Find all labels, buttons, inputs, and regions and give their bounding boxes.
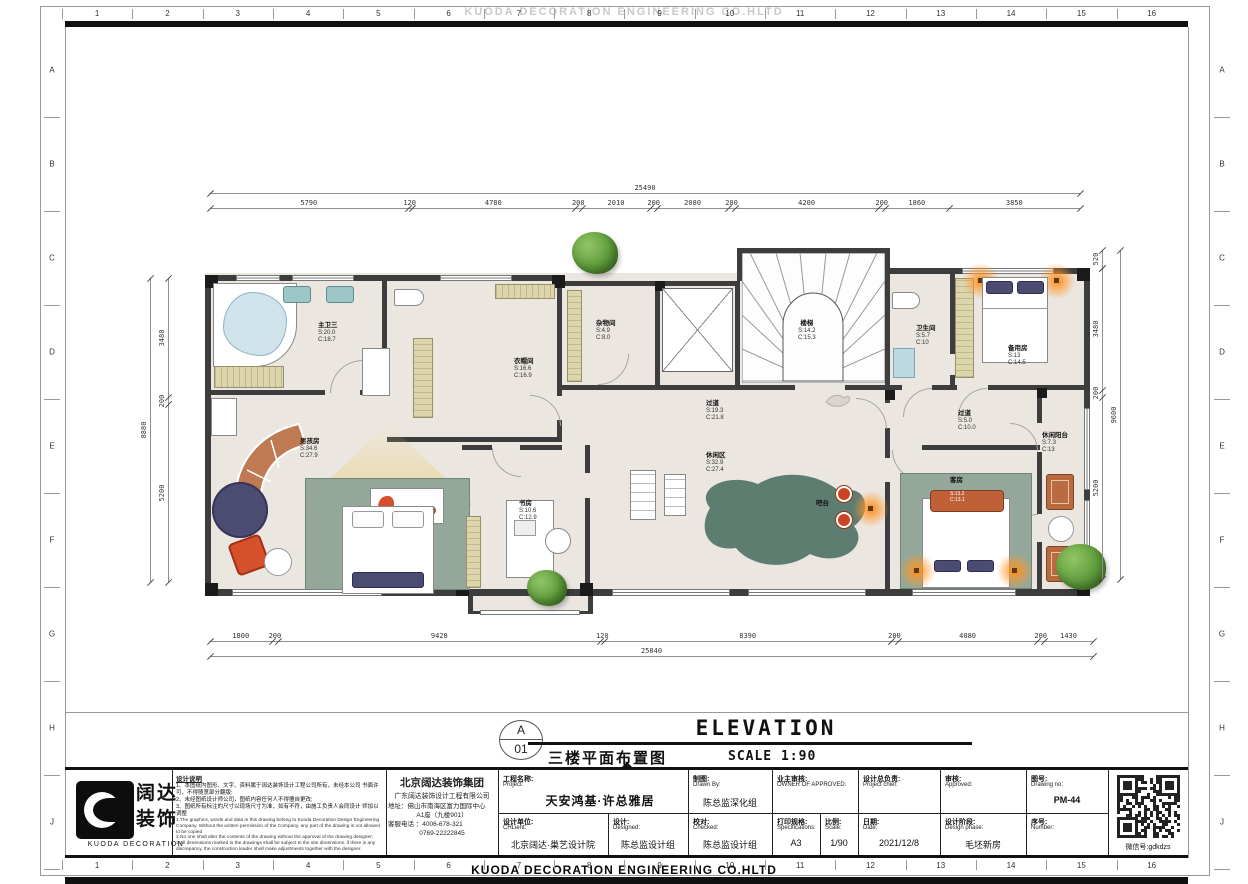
gym-equipment <box>664 474 686 516</box>
ruler-col-7: 7 <box>517 861 521 870</box>
plant <box>527 570 567 606</box>
storage-shelf <box>567 290 582 382</box>
ruler-tick <box>343 860 344 870</box>
ruler-tick <box>695 9 696 19</box>
ruler-col-7: 7 <box>517 9 521 18</box>
dim-bottom-total-tick <box>1090 653 1097 660</box>
ruler-tick <box>695 860 696 870</box>
ruler-tick <box>1117 860 1118 870</box>
window <box>292 275 354 281</box>
ruler-tick <box>203 9 204 19</box>
dim-bottom-label: 9420 <box>431 632 448 640</box>
ruler-tick <box>835 860 836 870</box>
room-label-master-bath: 主卫三 S:20.0 C:18.7 <box>318 322 338 345</box>
ruler-tick <box>765 860 766 870</box>
dim-bottom-tick <box>1090 638 1097 645</box>
dim-bottom-label: 1800 <box>232 632 249 640</box>
window <box>748 589 866 596</box>
window <box>236 275 280 281</box>
ruler-tick <box>906 860 907 870</box>
wardrobe <box>495 284 555 299</box>
dim-top-label: 5790 <box>300 199 317 207</box>
toilet <box>892 292 920 309</box>
ruler-col-8: 8 <box>587 9 591 18</box>
ruler-row-F: F <box>1220 536 1225 545</box>
window <box>480 610 580 615</box>
room-label-stairs: 楼梯 S:14.2 C:15.3 <box>798 320 816 343</box>
column <box>205 583 218 596</box>
bubble-top: A <box>500 721 542 740</box>
bookshelf <box>466 516 481 588</box>
ruler-col-15: 15 <box>1077 861 1086 870</box>
pillow <box>967 560 994 572</box>
ruler-col-8: 8 <box>587 861 591 870</box>
ruler-col-2: 2 <box>165 861 169 870</box>
ruler-tick <box>1214 775 1230 776</box>
wall <box>735 281 740 390</box>
wall <box>1037 542 1042 596</box>
stairs-fan <box>742 253 885 383</box>
wardrobe <box>955 278 974 378</box>
frame-right-inner <box>1188 27 1189 858</box>
ruler-tick <box>44 587 60 588</box>
window <box>440 275 512 281</box>
frame-top-bar <box>65 21 1188 27</box>
ruler-col-2: 2 <box>165 9 169 18</box>
ruler-col-1: 1 <box>95 861 99 870</box>
room-label-boys-room: 男孩房 S:34.6 C:27.9 <box>300 438 320 461</box>
pillow <box>986 281 1013 294</box>
ruler-tick <box>343 9 344 19</box>
dim-bottom-label: 8390 <box>739 632 756 640</box>
ruler-tick <box>44 399 60 400</box>
bathtub <box>223 292 287 356</box>
elevation-divider <box>65 712 1188 713</box>
ruler-col-10: 10 <box>725 9 734 18</box>
wall <box>560 281 737 286</box>
ruler-row-F: F <box>50 536 55 545</box>
print-spec: A3 <box>790 838 801 848</box>
elevation-marker <box>620 762 634 769</box>
ruler-tick <box>44 869 60 870</box>
ruler-tick <box>624 9 625 19</box>
ruler-tick <box>44 211 60 212</box>
dim-right-total-label: 9600 <box>1110 406 1118 423</box>
sink <box>283 286 311 303</box>
wall <box>885 428 890 458</box>
ruler-col-9: 9 <box>657 861 661 870</box>
designed-by: 陈总监设计组 <box>621 838 675 851</box>
frame-left-outer <box>40 6 41 876</box>
dim-top-label: 3850 <box>1006 199 1023 207</box>
room-label-corridor-main: 过道 S:19.3 C:21.8 <box>706 400 724 423</box>
ruler-tick <box>976 9 977 19</box>
bed-fold <box>982 308 1048 309</box>
room-label-guest: 客房 <box>950 477 963 485</box>
room-label-guest-sc: S:13.2 C:13.1 <box>950 491 965 503</box>
dresser <box>362 348 390 396</box>
dim-top-total-label: 25490 <box>634 184 655 192</box>
elevation-scale: SCALE 1:90 <box>728 749 816 764</box>
dim-bottom-total-line <box>210 656 1093 657</box>
ruler-row-H: H <box>49 724 55 733</box>
dim-bottom-label: 1430 <box>1060 632 1077 640</box>
ruler-col-4: 4 <box>306 9 310 18</box>
wall <box>932 385 957 390</box>
field-label: OWNER OF APPROVED: <box>777 782 846 788</box>
window <box>962 268 1054 274</box>
bar-stool <box>836 512 852 528</box>
ruler-col-14: 14 <box>1007 9 1016 18</box>
tb-divider <box>386 770 387 855</box>
ruler-tick <box>624 860 625 870</box>
blanket <box>352 572 424 588</box>
lounge-chair <box>1046 474 1074 510</box>
wall <box>205 390 325 395</box>
company-group: 北京阔达装饰集团 <box>388 775 496 791</box>
ruler-row-A: A <box>1219 66 1224 75</box>
wall <box>885 482 890 596</box>
ruler-row-C: C <box>1219 254 1225 263</box>
ruler-tick <box>976 860 977 870</box>
pillow <box>352 511 384 528</box>
room-label-spare: 备用房 S:13 C:14.5 <box>1008 345 1028 368</box>
ruler-tick <box>44 681 60 682</box>
dim-bottom-total-label: 25840 <box>641 647 662 655</box>
dim-top-label: 4780 <box>485 199 502 207</box>
wall <box>387 437 562 442</box>
ruler-tick <box>203 860 204 870</box>
window <box>612 589 730 596</box>
wall <box>660 385 740 390</box>
ruler-tick <box>62 9 63 19</box>
ruler-tick <box>1214 493 1230 494</box>
ruler-tick <box>765 9 766 19</box>
wall <box>655 286 660 390</box>
ruler-col-3: 3 <box>236 861 240 870</box>
dim-left-total-label: 8880 <box>140 422 148 439</box>
ruler-col-11: 11 <box>796 9 804 18</box>
design-unit: 北京阔达·巢艺设计院 <box>511 838 595 851</box>
ruler-tick <box>554 9 555 19</box>
ruler-tick <box>1214 399 1230 400</box>
ruler-row-C: C <box>49 254 55 263</box>
dim-left-tick <box>165 579 172 586</box>
dim-top-label: 1860 <box>908 199 925 207</box>
wall <box>988 385 1084 390</box>
wall <box>1037 395 1042 423</box>
tb-divider <box>820 813 821 855</box>
design-notes-header: 设计说明 <box>176 773 382 783</box>
room-label-bathroom: 卫生间 S:5.7 C:10 <box>916 325 936 348</box>
tb-divider <box>498 813 1108 814</box>
dim-right-total-tick <box>1117 576 1124 583</box>
room-label-cloakroom: 衣帽间 S:16.6 C:16.9 <box>514 358 534 381</box>
column <box>1077 268 1090 281</box>
ruler-tick <box>132 9 133 19</box>
design-notes: 设计说明 1、本图纸内图形、文字、资料属于阔达装饰设计工程公司所有，未经本公司 … <box>176 773 382 855</box>
ruler-col-15: 15 <box>1077 9 1086 18</box>
ruler-row-H: H <box>1219 724 1225 733</box>
drawing-sheet: KUODA DECORATION ENGINEERING CO.HLTD KUO… <box>0 0 1248 884</box>
field-label: Drawing no: <box>1031 782 1063 788</box>
project-name: 天安鸿基·许总雅居 <box>546 792 655 809</box>
ruler-tick <box>414 9 415 19</box>
bar-stool <box>836 486 852 502</box>
wall <box>1037 452 1042 514</box>
ruler-tick <box>273 9 274 19</box>
dim-top-total-line <box>210 193 1080 194</box>
room-label-study: 书房 S:10.6 C:12.9 <box>519 500 537 523</box>
ruler-col-13: 13 <box>936 9 945 18</box>
ruler-tick <box>62 860 63 870</box>
ruler-row-J: J <box>1220 818 1224 827</box>
dim-left-label: 3480 <box>158 329 166 346</box>
room-label-leisure: 休闲区 S:32.9 C:27.4 <box>706 452 726 475</box>
ruler-tick <box>414 860 415 870</box>
dim-right-total-line <box>1120 250 1121 579</box>
dim-bottom-label: 4080 <box>959 632 976 640</box>
elevator-shaft <box>662 288 733 372</box>
wechat-id: 微信号:gdkdzs <box>1100 842 1196 852</box>
room-label-bar: 吧台 <box>816 500 829 508</box>
wall <box>562 385 660 390</box>
dim-left-total-tick <box>147 579 154 586</box>
titleblock-bottom-rule <box>65 855 1188 858</box>
dim-right-extra-line <box>1102 250 1103 268</box>
ruler-row-E: E <box>49 442 54 451</box>
ruler-col-16: 16 <box>1147 861 1156 870</box>
ruler-tick <box>1214 587 1230 588</box>
dim-top-total-tick <box>1077 190 1084 197</box>
ruler-row-B: B <box>49 160 54 169</box>
tb-divider <box>608 813 609 855</box>
headboard <box>930 490 1004 512</box>
wall <box>520 445 562 450</box>
bird-decor <box>822 388 852 410</box>
ruler-col-13: 13 <box>936 861 945 870</box>
pillow <box>934 560 961 572</box>
ruler-row-D: D <box>1219 348 1225 357</box>
gym-equipment <box>630 470 656 520</box>
design-phase: 毛坯新房 <box>965 838 1001 851</box>
ruler-tick <box>1046 860 1047 870</box>
company-name: 广东阔达装饰设计工程有限公司 <box>388 791 496 802</box>
ruler-tick <box>554 860 555 870</box>
ruler-tick <box>273 860 274 870</box>
company-info: 北京阔达装饰集团 广东阔达装饰设计工程有限公司 地址：佛山市南海区富力国际中心 … <box>388 775 496 838</box>
ruler-tick <box>1214 117 1230 118</box>
pillow <box>392 511 424 528</box>
desk-chair <box>545 528 571 554</box>
ruler-tick <box>44 117 60 118</box>
field-label: Drawn By: <box>693 782 721 788</box>
field-label: Design phase: <box>945 825 983 831</box>
scale-value: 1/90 <box>830 838 848 848</box>
dim-bottom-line <box>210 641 1093 642</box>
room-label-corridor-right: 过道 S:5.0 C:10.0 <box>958 410 976 433</box>
wall <box>885 273 890 403</box>
ruler-row-J: J <box>50 818 54 827</box>
ruler-col-4: 4 <box>306 861 310 870</box>
ruler-tick <box>44 305 60 306</box>
ruler-col-6: 6 <box>446 9 450 18</box>
ruler-tick <box>484 9 485 19</box>
dim-top-label: 4200 <box>798 199 815 207</box>
column <box>885 390 895 400</box>
plant <box>1056 544 1106 590</box>
room-label-storage: 杂物间 S:4.9 C:8.0 <box>596 320 616 343</box>
elevation-rule <box>528 742 972 745</box>
ruler-tick <box>835 9 836 19</box>
ruler-tick <box>484 860 485 870</box>
drawn-by: 陈总监深化组 <box>703 796 757 809</box>
wardrobe <box>413 338 433 418</box>
wall <box>740 385 795 390</box>
ruler-tick <box>1117 9 1118 19</box>
wall <box>462 445 492 450</box>
wall <box>585 445 590 473</box>
wall <box>557 281 562 396</box>
frame-top-outer <box>40 6 1210 7</box>
ruler-col-10: 10 <box>725 861 734 870</box>
ruler-tick <box>1214 869 1230 870</box>
field-label: CHLient: <box>503 825 526 831</box>
balcony-table <box>1048 516 1074 542</box>
detail-bubble: A 01 <box>499 720 543 760</box>
frame-left-inner <box>65 27 66 858</box>
dim-right-extra-label: 520 <box>1092 253 1100 266</box>
shower <box>893 348 915 378</box>
checked-by: 陈总监设计组 <box>703 838 757 851</box>
ruler-tick <box>44 493 60 494</box>
field-label: Date: <box>863 825 877 831</box>
sink <box>326 286 354 303</box>
ruler-col-12: 12 <box>866 861 875 870</box>
dim-right-label: 200 <box>1092 387 1100 400</box>
ruler-row-B: B <box>1219 160 1224 169</box>
dim-left-total-line <box>150 278 151 582</box>
wall <box>585 498 590 596</box>
field-label: Number: <box>1031 825 1054 831</box>
bath-cabinet <box>214 366 284 388</box>
drawing-number: PM-44 <box>1054 795 1081 805</box>
dim-top-tick <box>1077 205 1084 212</box>
ruler-tick <box>1214 305 1230 306</box>
frame-bottom-bar <box>65 877 1188 884</box>
field-label: Project: <box>503 782 523 788</box>
room-label-balcony: 休闲阳台 S:7.3 C:13 <box>1042 432 1068 455</box>
dim-top-label: 2010 <box>608 199 625 207</box>
ruler-col-12: 12 <box>866 9 875 18</box>
date-value: 2021/12/8 <box>879 838 919 848</box>
column <box>580 583 593 596</box>
ruler-col-9: 9 <box>657 9 661 18</box>
kuoda-logo-mark <box>76 781 134 839</box>
ruler-col-1: 1 <box>95 9 99 18</box>
ruler-tick <box>1046 9 1047 19</box>
dim-left-label: 5200 <box>158 485 166 502</box>
field-label: Checked: <box>693 825 718 831</box>
ruler-row-G: G <box>49 630 55 639</box>
dim-right-line <box>1102 268 1103 579</box>
window <box>1084 408 1090 490</box>
elevation-subtitle: 三楼平面布置图 <box>548 747 667 768</box>
plant <box>572 232 618 274</box>
ruler-tick <box>132 860 133 870</box>
field-label: Approved: <box>945 782 972 788</box>
ruler-tick <box>1214 681 1230 682</box>
ruler-col-5: 5 <box>376 9 380 18</box>
ruler-row-A: A <box>49 66 54 75</box>
ruler-tick <box>1214 211 1230 212</box>
ruler-row-E: E <box>1219 442 1224 451</box>
field-label: Specifications: <box>777 825 816 831</box>
field-label: Scale: <box>825 825 842 831</box>
dim-right-label: 3480 <box>1092 321 1100 338</box>
ruler-col-5: 5 <box>376 861 380 870</box>
pillow <box>1017 281 1044 294</box>
ruler-row-G: G <box>1219 630 1225 639</box>
ruler-col-3: 3 <box>236 9 240 18</box>
ruler-col-14: 14 <box>1007 861 1016 870</box>
ruler-tick <box>44 775 60 776</box>
window <box>912 589 1016 596</box>
tb-divider <box>172 770 173 855</box>
side-table <box>264 548 292 576</box>
ruler-col-16: 16 <box>1147 9 1156 18</box>
field-label: Designed: <box>613 825 640 831</box>
field-label: Project chief: <box>863 782 898 788</box>
dim-left-label: 200 <box>158 394 166 407</box>
dim-top-label: 2080 <box>684 199 701 207</box>
dim-left-line <box>168 278 169 582</box>
round-rug <box>212 482 268 538</box>
dim-right-label: 5200 <box>1092 480 1100 497</box>
ruler-tick <box>906 9 907 19</box>
wall <box>885 248 890 273</box>
toilet <box>394 289 424 306</box>
ruler-col-6: 6 <box>446 861 450 870</box>
ruler-col-11: 11 <box>796 861 804 870</box>
frame-right-outer <box>1209 6 1210 876</box>
ruler-row-D: D <box>49 348 55 357</box>
elevation-title: ELEVATION <box>560 716 972 740</box>
column <box>1037 388 1047 398</box>
